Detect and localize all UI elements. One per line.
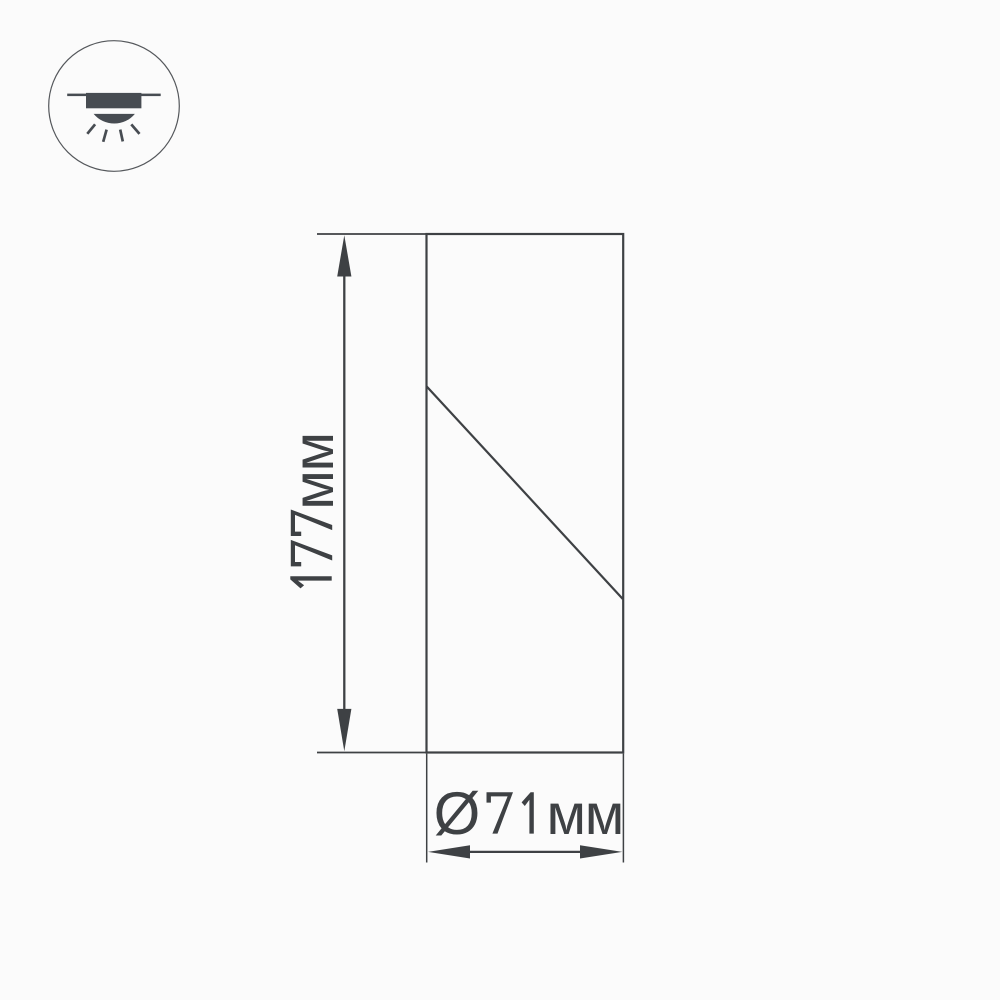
svg-text:м: м xyxy=(585,783,625,847)
svg-text:м: м xyxy=(282,470,346,510)
svg-text:м: м xyxy=(546,783,586,847)
svg-text:м: м xyxy=(282,432,346,472)
svg-text:Ø: Ø xyxy=(434,780,481,847)
